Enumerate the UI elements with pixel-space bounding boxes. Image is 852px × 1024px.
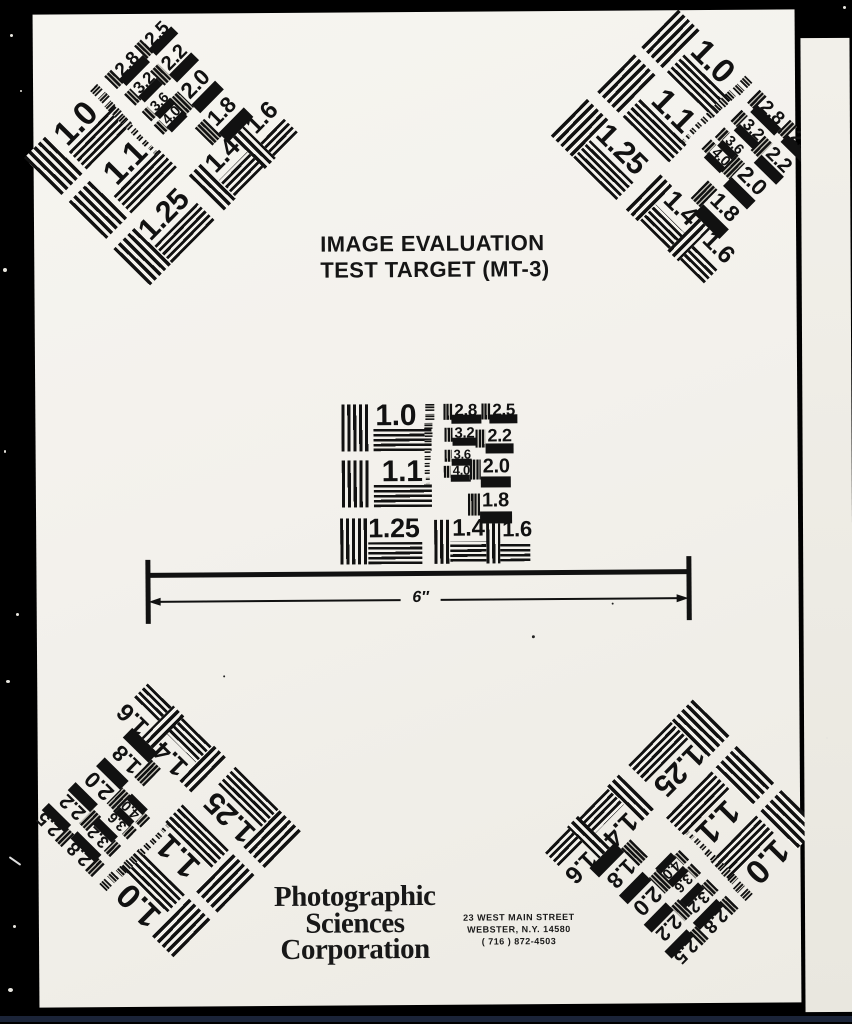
scale-bar-line <box>148 569 688 577</box>
ladder-element <box>161 827 167 833</box>
dust-speck <box>3 268 7 272</box>
ladder-element <box>425 414 434 420</box>
vertical-bars <box>444 428 452 442</box>
dimension-line-left <box>155 599 401 603</box>
address-line-1: 23 WEST MAIN STREET <box>451 911 587 924</box>
vertical-bars <box>445 450 452 462</box>
scratch-mark <box>9 856 22 866</box>
company-logo: Photographic Sciences Corporation <box>244 883 467 964</box>
ladder-element <box>740 888 753 901</box>
ladder-element <box>425 448 431 453</box>
dust-speck <box>16 613 19 616</box>
test-pattern-center: 1.01.11.251.41.62.82.53.22.23.64.02.01.8 <box>339 401 532 568</box>
scale-tick-right <box>686 556 691 620</box>
resolution-element-label: 1.0 <box>375 401 416 431</box>
dust-speck <box>8 988 13 992</box>
ladder-element <box>424 423 432 429</box>
solid-bar <box>453 438 477 446</box>
dust-speck <box>826 737 828 739</box>
resolution-element-label: 2.0 <box>483 456 510 476</box>
dust-speck <box>13 925 16 928</box>
ladder-element <box>424 432 432 437</box>
dimension-line-right <box>441 597 681 601</box>
ladder-element <box>426 483 430 486</box>
solid-bar <box>481 476 511 487</box>
title-line-1: IMAGE EVALUATION <box>320 230 549 258</box>
dust-speck <box>4 450 6 453</box>
horizontal-bars <box>374 484 432 507</box>
vertical-bars <box>434 520 450 564</box>
test-pattern-top-left: 1.01.11.251.41.62.82.53.22.23.64.02.01.8 <box>21 5 304 289</box>
scanned-document: { "scan": { "title": { "line1": "IMAGE E… <box>0 0 852 1024</box>
company-logo-line-3: Corporation <box>244 936 466 964</box>
page-title: IMAGE EVALUATION TEST TARGET (MT-3) <box>320 230 550 284</box>
solid-bar <box>480 511 512 523</box>
ladder-element <box>695 122 702 129</box>
ladder-element <box>694 838 701 845</box>
scale-length-label: 6″ <box>397 589 445 607</box>
dust-speck <box>223 675 225 677</box>
ladder-element <box>426 477 430 480</box>
horizontal-bars <box>368 542 422 564</box>
dust-speck <box>20 90 22 92</box>
vertical-bars <box>340 518 367 564</box>
ladder-element <box>107 871 119 883</box>
horizontal-bars <box>500 543 530 561</box>
resolution-element-label: 1.8 <box>482 490 509 510</box>
resolution-element-label: 1.25 <box>368 515 420 542</box>
ladder-element <box>425 463 430 467</box>
ladder-element <box>99 879 112 892</box>
solid-bar <box>489 414 517 423</box>
ladder-element <box>425 404 434 411</box>
horizontal-bars <box>450 541 490 561</box>
dust-speck <box>612 603 614 605</box>
dust-speck <box>532 635 535 638</box>
vertical-bars <box>475 430 485 448</box>
ladder-element <box>700 116 708 124</box>
scan-page: 1.01.11.251.41.62.82.53.22.23.64.02.01.8… <box>33 9 802 1007</box>
vertical-bars <box>341 404 369 451</box>
ladder-element <box>704 849 712 857</box>
vertical-bars <box>486 523 500 563</box>
right-arrowhead-icon <box>677 594 689 602</box>
address-line-2: WEBSTER, N.Y. 14580 <box>451 923 587 936</box>
bottom-edge-line <box>0 1016 852 1022</box>
ladder-element <box>143 843 151 851</box>
address-block: 23 WEST MAIN STREET WEBSTER, N.Y. 14580 … <box>451 911 587 948</box>
dust-speck <box>843 6 846 9</box>
scale-tick-left <box>145 560 150 624</box>
ladder-element <box>684 829 690 835</box>
solid-bar <box>451 415 481 424</box>
ladder-element <box>425 440 432 445</box>
ladder-element <box>150 838 157 845</box>
vertical-bars <box>444 466 451 478</box>
title-line-2: TEST TARGET (MT-3) <box>320 256 549 284</box>
adjacent-page-strip <box>800 38 852 1012</box>
ladder-element <box>142 140 149 147</box>
ladder-element <box>740 76 753 89</box>
dust-speck <box>10 34 13 37</box>
ladder-element <box>148 145 154 151</box>
ladder-element <box>699 844 706 851</box>
vertical-bars <box>342 460 370 507</box>
horizontal-bars <box>373 428 431 451</box>
vertical-bars <box>468 494 480 516</box>
ladder-element <box>425 470 430 474</box>
left-arrowhead-icon <box>149 597 161 605</box>
solid-bar <box>451 475 471 482</box>
resolution-element-label: 2.2 <box>487 426 511 444</box>
ladder-element <box>689 127 696 134</box>
dust-speck <box>6 680 10 683</box>
solid-bar <box>486 443 514 453</box>
ladder-element <box>425 456 431 460</box>
resolution-element-label: 1.1 <box>382 457 423 487</box>
address-line-3: ( 716 ) 872-4503 <box>451 935 587 948</box>
ladder-element <box>685 134 691 140</box>
ladder-element <box>733 84 745 96</box>
ladder-element <box>689 834 695 840</box>
ladder-element <box>131 128 139 136</box>
vertical-bars <box>470 460 481 480</box>
test-pattern-top-right: 1.01.11.251.41.62.82.53.22.23.64.02.01.8 <box>548 6 832 289</box>
ladder-element <box>155 832 162 839</box>
ladder-element <box>136 134 143 141</box>
